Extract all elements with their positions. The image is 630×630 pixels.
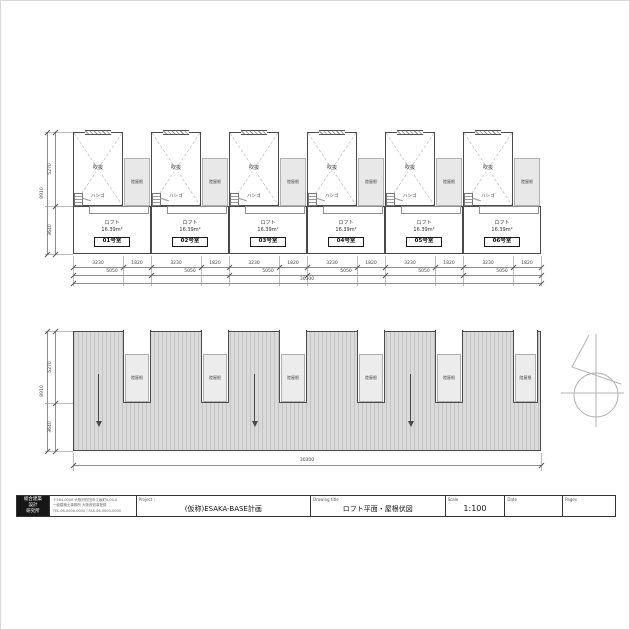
ladder-label: ハシゴ — [481, 195, 503, 201]
dim-label-3230: 3230 — [83, 262, 113, 267]
void-label: 吹抜 — [398, 165, 422, 172]
blueprint-sheet: 吹抜陸屋根ハシゴロフト16.39m²01号室吹抜陸屋根ハシゴロフト16.39m²… — [0, 0, 630, 630]
room-number: 03号室 — [250, 237, 286, 247]
loft-label: ロフト — [463, 220, 541, 226]
dimension-line — [73, 465, 541, 466]
drawing-title-cell: Drawing title ロフト平面・屋根伏図 — [311, 496, 446, 516]
dim-label-3230: 3230 — [317, 262, 347, 267]
loft-edge-rect — [89, 206, 149, 214]
ladder-label: ハシゴ — [91, 195, 113, 201]
dim-label-1820: 1820 — [122, 262, 152, 267]
dim-extension-line — [45, 206, 73, 207]
ladder-icon — [386, 193, 395, 206]
title-block: 総合建築 設計 研究所 〒564-0000 大阪府吹田市江坂町0-00-0 一級… — [16, 495, 616, 517]
dim-label-1820: 1820 — [512, 262, 542, 267]
loft-edge-rect — [401, 206, 461, 214]
flat-roof-label: 陸屋根 — [514, 178, 540, 185]
dim-extension-line — [151, 256, 152, 286]
logo-line: 研究所 — [26, 509, 40, 515]
loft-area-label: 16.39m² — [307, 227, 385, 233]
project-name: (仮称)ESAKA-BASE計画 — [137, 501, 310, 516]
dim-label-1820: 1820 — [356, 262, 386, 267]
flat-roof-label: 陸屋根 — [125, 374, 149, 381]
project-cell: Project : (仮称)ESAKA-BASE計画 — [137, 496, 311, 516]
scale-cell: Scale 1:100 — [446, 496, 506, 516]
dim-extension-line — [541, 453, 542, 471]
dim-label-3230: 3230 — [395, 262, 425, 267]
dim-extension-line — [45, 331, 73, 332]
slope-arrow-head — [252, 421, 258, 427]
dim-extension-line — [73, 453, 74, 471]
slope-arrow-head — [96, 421, 102, 427]
dim-label-1820: 1820 — [200, 262, 230, 267]
loft-edge-rect — [245, 206, 305, 214]
flat-roof-label: 陸屋根 — [437, 374, 461, 381]
dim-extension-line — [45, 451, 73, 452]
dim-label-5050: 5050 — [175, 270, 205, 275]
dimension-line — [73, 283, 541, 284]
roof-wall-hatch — [241, 130, 267, 135]
dim-label-total: 30300 — [292, 459, 322, 464]
void-label: 吹抜 — [242, 165, 266, 172]
roof-wall-hatch — [163, 130, 189, 135]
void-label: 吹抜 — [320, 165, 344, 172]
slope-arrow-line — [254, 374, 255, 422]
ladder-icon — [74, 193, 83, 206]
dim-label-3640: 3640 — [48, 218, 54, 242]
dim-label-5050: 5050 — [487, 270, 517, 275]
ladder-label: ハシゴ — [325, 195, 347, 201]
ladder-label: ハシゴ — [247, 195, 269, 201]
dim-label-3230: 3230 — [473, 262, 503, 267]
void-label: 吹抜 — [86, 165, 110, 172]
dim-label-5270: 5270 — [48, 157, 54, 181]
roof-wall-hatch — [397, 130, 423, 135]
dim-extension-line — [45, 403, 73, 404]
ladder-icon — [230, 193, 239, 206]
roof-wall-hatch — [319, 130, 345, 135]
dim-extension-line — [385, 256, 386, 286]
slope-arrow-line — [98, 374, 99, 422]
flat-roof-label: 陸屋根 — [124, 178, 150, 185]
loft-edge-rect — [479, 206, 539, 214]
dim-label-1820: 1820 — [278, 262, 308, 267]
dim-label-3230: 3230 — [161, 262, 191, 267]
room-number: 01号室 — [94, 237, 130, 247]
slope-arrow-head — [408, 421, 414, 427]
room-number: 04号室 — [328, 237, 364, 247]
loft-label: ロフト — [307, 220, 385, 226]
dim-extension-line — [229, 256, 230, 286]
north-arrow-icon — [549, 327, 630, 435]
ladder-icon — [152, 193, 161, 206]
dim-label-5050: 5050 — [97, 270, 127, 275]
dimension-line — [55, 132, 56, 254]
room-number: 02号室 — [172, 237, 208, 247]
loft-label: ロフト — [385, 220, 463, 226]
roof-wall-hatch — [475, 130, 501, 135]
loft-label: ロフト — [151, 220, 229, 226]
dim-label-5050: 5050 — [409, 270, 439, 275]
loft-area-label: 16.39m² — [73, 227, 151, 233]
loft-area-label: 16.39m² — [229, 227, 307, 233]
flat-roof-label: 陸屋根 — [280, 178, 306, 185]
ladder-label: ハシゴ — [403, 195, 425, 201]
loft-edge-rect — [323, 206, 383, 214]
date-cell: Date — [505, 496, 563, 516]
flat-roof-label: 陸屋根 — [358, 178, 384, 185]
loft-area-label: 16.39m² — [151, 227, 229, 233]
dim-label-1820: 1820 — [434, 262, 464, 267]
flat-roof-label: 陸屋根 — [515, 374, 536, 381]
pages-cell: Pages — [563, 496, 615, 516]
architect-logo: 総合建築 設計 研究所 — [17, 496, 50, 516]
loft-area-label: 16.39m² — [463, 227, 541, 233]
loft-label: ロフト — [73, 220, 151, 226]
drawing-title: ロフト平面・屋根伏図 — [311, 501, 445, 516]
dim-extension-line — [45, 132, 73, 133]
dim-label-5050: 5050 — [331, 270, 361, 275]
flat-roof-label: 陸屋根 — [203, 374, 227, 381]
scale-value: 1:100 — [446, 501, 505, 516]
dim-label-5050: 5050 — [253, 270, 283, 275]
dim-label-8910: 8910 — [40, 379, 46, 403]
roof-wall-hatch — [85, 130, 111, 135]
ladder-icon — [308, 193, 317, 206]
architect-office-info: 〒564-0000 大阪府吹田市江坂町0-00-0 一級建築士事務所 大阪府知事… — [50, 496, 137, 516]
void-label: 吹抜 — [476, 165, 500, 172]
flat-roof-label: 陸屋根 — [202, 178, 228, 185]
date-value — [505, 501, 562, 516]
dimension-line — [55, 331, 56, 451]
dim-label-3230: 3230 — [239, 262, 269, 267]
dim-label-5270: 5270 — [48, 355, 54, 379]
room-number: 05号室 — [406, 237, 442, 247]
office-info-line: TEL.06-0000-0000 / FAX.06-0000-0000 — [53, 509, 136, 514]
dim-extension-line — [463, 256, 464, 286]
flat-roof-label: 陸屋根 — [281, 374, 305, 381]
pages-value — [563, 501, 615, 516]
dim-label-total: 30300 — [292, 278, 322, 283]
void-label: 吹抜 — [164, 165, 188, 172]
flat-roof-label: 陸屋根 — [436, 178, 462, 185]
loft-label: ロフト — [229, 220, 307, 226]
dim-label-8910: 8910 — [40, 181, 46, 205]
loft-area-label: 16.39m² — [385, 227, 463, 233]
dim-label-3640: 3640 — [48, 415, 54, 439]
loft-edge-rect — [167, 206, 227, 214]
room-number: 06号室 — [484, 237, 520, 247]
ladder-label: ハシゴ — [169, 195, 191, 201]
flat-roof-label: 陸屋根 — [359, 374, 383, 381]
slope-arrow-line — [410, 374, 411, 422]
dim-extension-line — [45, 254, 73, 255]
ladder-icon — [464, 193, 473, 206]
drawing-layer: 吹抜陸屋根ハシゴロフト16.39m²01号室吹抜陸屋根ハシゴロフト16.39m²… — [1, 1, 630, 630]
